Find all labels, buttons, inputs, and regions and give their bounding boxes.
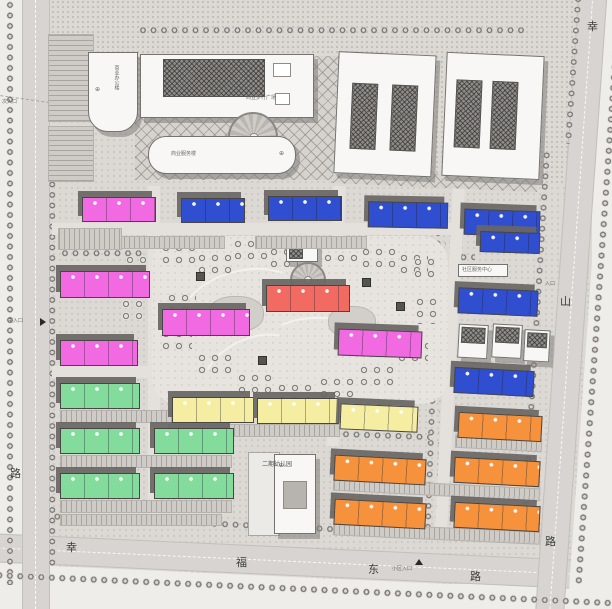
tree-row	[47, 148, 58, 568]
parking-strip	[60, 455, 232, 468]
hatched-roof	[527, 332, 548, 348]
retained-building	[523, 329, 551, 362]
kindergarten-court	[283, 481, 307, 509]
office-tower: ⊕ 商业办公楼	[88, 52, 138, 132]
parking-strip	[60, 514, 222, 526]
building-blue-5	[480, 231, 541, 254]
commercial-slab-east	[441, 52, 544, 180]
survey-marker: ⊕	[95, 87, 100, 93]
tree-grove	[412, 256, 440, 282]
entrance-arrow-west	[40, 318, 46, 326]
site-plan: ⊕ 商业办公楼 商业步行广场 商业服务楼 ⊕ 商业内街	[0, 0, 612, 609]
hatched-roof	[163, 59, 265, 97]
tree-grove	[236, 372, 272, 398]
building-green-3	[154, 428, 234, 454]
retained-building	[491, 323, 523, 359]
building-pink-2	[60, 271, 150, 298]
pavilion	[196, 272, 205, 281]
commercial-slab-west	[333, 51, 436, 177]
hatched-roof	[495, 327, 520, 344]
parking-strip	[255, 236, 367, 249]
inner-street-label: 商业内街	[394, 114, 414, 120]
office-tower-label: 商业办公楼	[113, 65, 119, 90]
kindergarten-label: 二期幼儿园	[262, 462, 292, 469]
tree-grove	[358, 364, 394, 390]
road-name-south-char2: 福	[236, 557, 247, 568]
tree-row	[5, 0, 17, 585]
entrance-west2-label: 次入口	[2, 100, 17, 106]
retained-building	[457, 324, 489, 360]
road-name-east-char1: 幸	[587, 21, 598, 32]
building-pink-5	[338, 329, 423, 359]
commercial-slab-label: 商业服务楼	[171, 152, 196, 158]
plaza-label: 商业步行广场	[246, 96, 276, 102]
hatched-courtyard	[490, 81, 519, 150]
building-blue-1	[181, 198, 245, 223]
building-yellow-3	[339, 403, 418, 432]
service-center-box: 社区服务中心	[458, 264, 508, 277]
building-yellow-2	[257, 398, 339, 424]
tree-grove	[318, 376, 354, 400]
building-pink-3	[162, 309, 250, 336]
commercial-building-main	[140, 54, 314, 118]
tree-row	[138, 25, 528, 36]
road-name-east-char2: 山	[560, 296, 571, 307]
building-pink-1	[82, 197, 156, 222]
road-name-east-char3: 路	[545, 536, 556, 547]
roof-unit	[273, 63, 291, 77]
tree-grove	[360, 246, 396, 272]
roof-unit	[275, 93, 290, 105]
building-blue-7	[453, 367, 534, 397]
building-blue-6	[457, 287, 538, 316]
low-rise-block	[58, 228, 122, 250]
commercial-group-east: 商业内街	[329, 39, 567, 191]
road-name-south-char1: 幸	[66, 542, 77, 553]
building-red-1	[266, 285, 350, 312]
building-blue-3	[368, 201, 448, 228]
building-orange-3	[453, 457, 540, 487]
parking-strip	[60, 500, 232, 513]
road-name-south-char3: 东	[368, 564, 379, 575]
road-centerline	[35, 0, 36, 609]
building-green-5	[154, 473, 234, 499]
commercial-slab: 商业服务楼 ⊕	[148, 136, 296, 174]
feature-center	[304, 276, 312, 284]
entrance-west-label: 主入口	[8, 319, 23, 325]
building-orange-2	[333, 455, 426, 486]
road-name-west-char1: 路	[10, 468, 21, 479]
road-name-south-char4: 路	[470, 571, 481, 582]
road-west	[22, 0, 50, 609]
survey-marker: ⊕	[279, 151, 284, 157]
building-green-4	[60, 473, 140, 499]
entrance-south-label: 小区入口	[392, 567, 412, 573]
entrance-east-label: 入口	[545, 282, 555, 288]
parking-strip	[48, 126, 94, 182]
service-center-label: 社区服务中心	[462, 268, 492, 274]
pavilion	[362, 278, 371, 287]
tree-grove	[196, 352, 232, 378]
building-green-1	[60, 383, 140, 409]
pavilion	[396, 302, 405, 311]
tree-grove	[120, 298, 148, 320]
building-blue-2	[268, 196, 342, 221]
building-orange-4	[333, 499, 426, 530]
retained-buildings	[457, 320, 551, 365]
building-pink-4	[60, 340, 138, 366]
kindergarten-group: ⊕ 二期幼儿园	[248, 444, 318, 536]
building-orange-1	[457, 412, 542, 442]
hatched-roof	[461, 327, 486, 344]
hatched-courtyard	[454, 79, 483, 148]
building-green-2	[60, 428, 140, 454]
building-yellow-1	[172, 397, 254, 423]
building-orange-5	[453, 502, 540, 532]
pavilion	[258, 356, 267, 365]
tree-grove	[414, 296, 442, 324]
entrance-arrow-south	[415, 559, 423, 565]
hatched-courtyard	[349, 83, 378, 150]
